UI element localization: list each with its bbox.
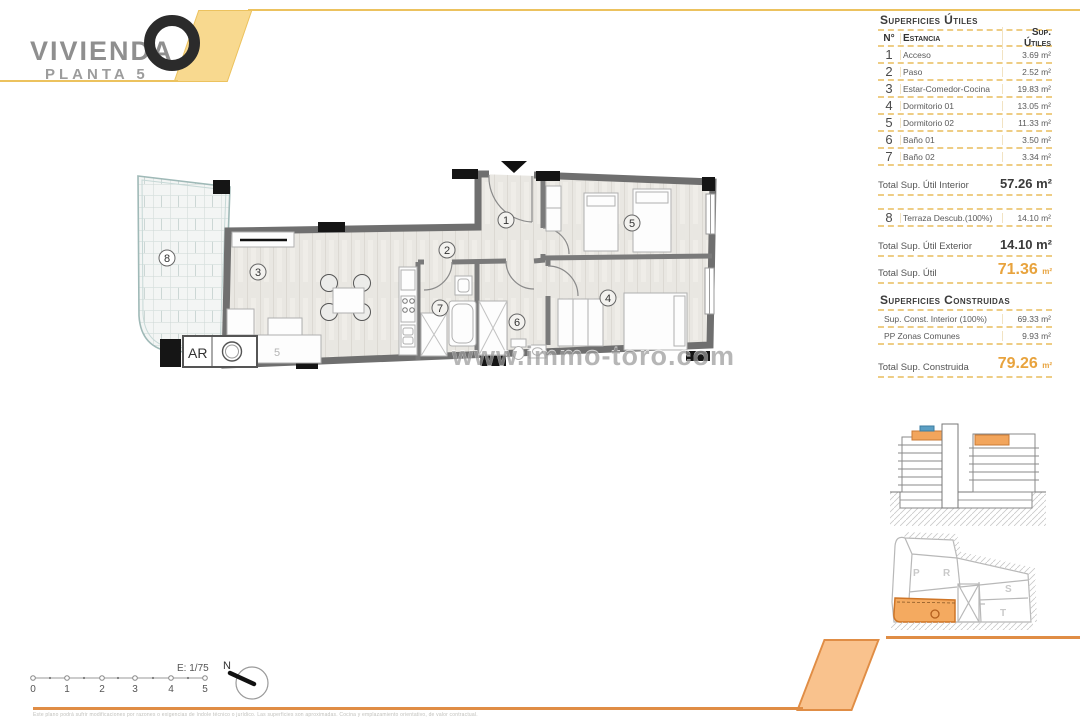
total-construida: Total Sup. Construida 79.26 m² [878,355,1052,378]
construidas-table: Sup. Const. Interior (100%) 69.33 m² PP … [878,309,1052,345]
col-sup: Sup. Útiles [1002,27,1052,49]
total-interior: Total Sup. Útil Interior 57.26 m² [878,176,1052,196]
disclaimer: Este plano podrá sufrir modificaciones p… [33,712,633,718]
scale-ticks: 0 1 2 3 4 5 [30,684,208,695]
total-exterior: Total Sup. Útil Exterior 14.10 m² [878,237,1052,257]
table-header-row: N° Estancia Sup. Útiles [878,29,1052,47]
logo-subtitle: PLANTA 5 [45,66,149,83]
svg-text:4: 4 [168,684,174,695]
svg-text:1: 1 [64,684,70,695]
ar-room: AR [183,336,257,367]
col-num: N° [878,33,900,44]
pool-icon [920,426,934,431]
svg-text:5: 5 [202,684,208,695]
table-row: 6 Baño 01 3.50 m² [878,132,1052,149]
col-room: Estancia [900,33,1002,44]
room-number: 7 [437,303,443,315]
logo-ring-icon [144,15,200,71]
room-number: 4 [605,293,611,305]
table-row: PP Zonas Comunes 9.93 m² [878,328,1052,345]
page: VIVIENDA PLANTA 5 [0,0,1080,720]
north-compass: N [213,655,279,707]
table-row: 4 Dormitorio 01 13.05 m² [878,98,1052,115]
terrace [138,176,230,352]
utiles-heading: Superficies Útiles [880,13,1052,27]
site-plan: P R S T [885,532,1045,636]
footer-rule-right [886,636,1080,639]
logo: VIVIENDA PLANTA 5 [28,10,248,90]
north-needle [230,673,254,684]
scale-label: E: 1/75 [177,663,209,674]
svg-text:2: 2 [99,684,105,695]
room-number: 3 [255,267,261,279]
footer-orange-stripe [796,639,880,711]
room-number: 6 [514,317,520,329]
table-row: 5 Dormitorio 02 11.33 m² [878,115,1052,132]
scale-bar: 0 1 2 3 4 5 E: 1/75 [25,658,225,698]
core-shaft [942,424,958,508]
watermark: www.immo-toro.com [452,341,735,372]
total-util: Total Sup. Útil 71.36 m² [878,261,1052,284]
ar-label: AR [188,345,207,361]
svg-text:3: 3 [132,684,138,695]
block-label-t: T [1000,608,1006,619]
north-label: N [223,660,231,672]
table-row: 7 Baño 02 3.34 m² [878,149,1052,166]
footer-rule-left [33,707,803,710]
block-label-s: S [1005,584,1012,595]
table-row: 3 Estar-Comedor-Cocina 19.83 m² [878,81,1052,98]
terrace-row: 8 Terraza Descub.(100%) 14.10 m² [878,208,1052,227]
utiles-table: N° Estancia Sup. Útiles 1 Acceso 3.69 m²… [878,29,1052,166]
entrance-arrow-icon [501,161,527,173]
room-number: 8 [164,253,170,265]
block-label-p: P [913,568,920,579]
table-row: 2 Paso 2.52 m² [878,64,1052,81]
construidas-heading: Superficies Construidas [880,293,1052,307]
unit-o-highlight [894,598,955,622]
block-label-r: R [943,568,951,579]
axis-label: 5 [274,347,280,359]
surface-panel: Superficies Útiles N° Estancia Sup. Útil… [878,13,1052,378]
room-number: 5 [629,218,635,230]
svg-text:0: 0 [30,684,36,695]
building-elevation [888,418,1048,530]
table-row: 1 Acceso 3.69 m² [878,47,1052,64]
room-number: 1 [503,215,509,227]
table-row: Sup. Const. Interior (100%) 69.33 m² [878,309,1052,328]
highlight-floor-right [975,435,1009,445]
site-hatch-bottom [891,622,1033,630]
header-rule [248,9,1080,11]
room-number: 2 [444,245,450,257]
